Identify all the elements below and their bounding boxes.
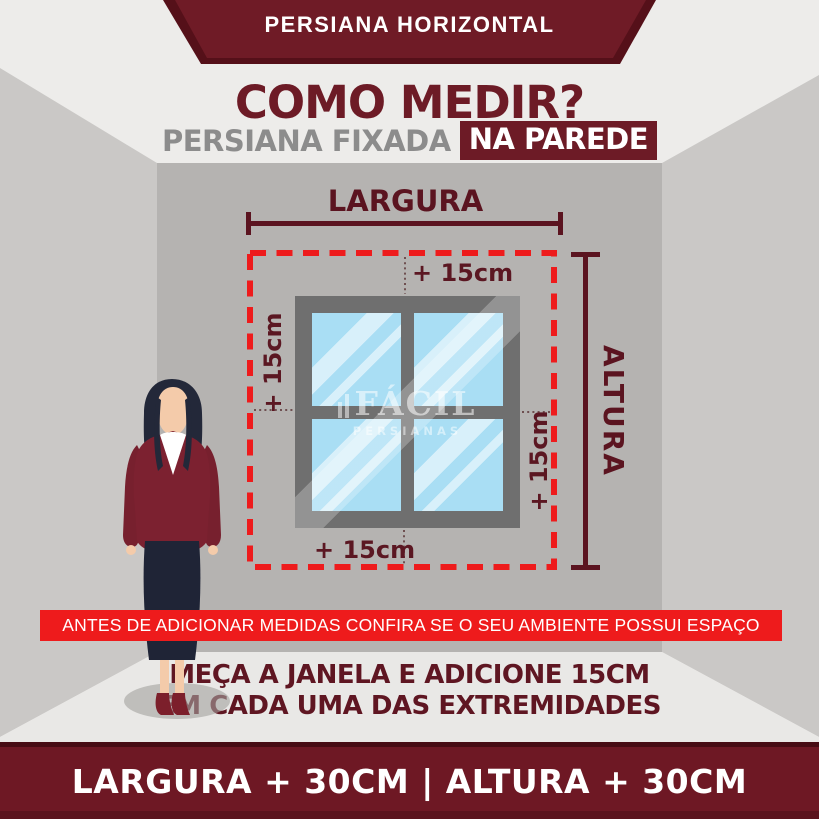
width-measure-tick-right [558,212,563,235]
height-measure-tick-bottom [571,565,600,570]
woman-right-hand [208,545,218,555]
footer-formula: LARGURA + 30CM | ALTURA + 30CM [72,762,747,805]
product-banner-label: PERSIANA HORIZONTAL [264,12,554,38]
brand-watermark-name: FÁCIL [354,387,476,420]
warning-banner-text: ANTES DE ADICIONAR MEDIDAS CONFIRA SE O … [62,615,759,636]
woman-figure [107,373,237,721]
subtitle-highlight-badge: NA PAREDE [460,121,657,160]
offset-bottom-label: + 15cm [314,536,415,564]
offset-left-label: + 15cm [259,312,287,413]
infographic-canvas: PERSIANA HORIZONTAL COMO MEDIR? PERSIANA… [0,0,819,819]
width-label: LARGURA [248,184,563,218]
brand-watermark-row: FÁCIL [338,387,476,420]
height-label: ALTURA [597,252,630,570]
subtitle-text: PERSIANA FIXADA [162,124,451,158]
subtitle: PERSIANA FIXADA NA PAREDE [0,121,819,160]
offset-top-label: + 15cm [412,259,513,287]
brand-watermark-sub: PERSIANAS [353,424,462,438]
footer-shade [0,811,819,819]
woman-skirt [144,541,201,660]
brand-watermark: FÁCIL PERSIANAS [295,296,520,528]
height-measure-line [583,252,588,570]
width-measure-tick-left [246,212,251,235]
footer-banner: LARGURA + 30CM | ALTURA + 30CM [0,742,819,819]
offset-right-label: + 15cm [525,410,553,511]
product-banner: PERSIANA HORIZONTAL [0,0,819,58]
woman-left-hand [126,545,136,555]
height-measure-tick-top [571,252,600,257]
facil-logo-bars-icon [338,394,349,420]
width-measure-line [246,221,563,226]
warning-banner: ANTES DE ADICIONAR MEDIDAS CONFIRA SE O … [40,610,782,641]
